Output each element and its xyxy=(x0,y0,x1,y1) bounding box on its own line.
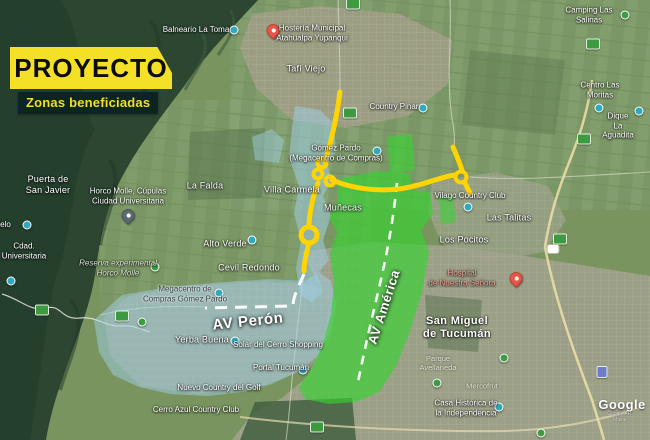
route-shield-icon xyxy=(35,305,49,316)
map-label-mercofrut[interactable]: Mercofrut xyxy=(466,382,498,391)
map-label-alto-verde[interactable]: Alto Verde xyxy=(203,239,247,250)
map-label-cdad-univ[interactable]: Cdad. Universitaria xyxy=(2,241,46,260)
map-label-avellaneda[interactable]: Parque Avellaneda xyxy=(420,354,457,372)
project-subtitle: Zonas beneficiadas xyxy=(18,92,158,114)
tree-poi-icon[interactable] xyxy=(621,11,630,20)
poi-dot-icon[interactable] xyxy=(248,236,257,245)
map-label-puerta[interactable]: Puerta de San Javier xyxy=(26,174,71,196)
tree-poi-icon[interactable] xyxy=(433,379,442,388)
route-shield-icon xyxy=(586,39,600,50)
map-label-aguadita[interactable]: Dique La Aguadita xyxy=(602,112,634,141)
map-label-hosteria[interactable]: Hostería Municipal Atahualpa Yupanqui xyxy=(276,23,347,42)
map-canvas[interactable]: Balneario La Toma Hostería Municipal Ata… xyxy=(0,0,650,440)
pin-center-dot xyxy=(125,213,131,219)
map-label-reserva[interactable]: Reserva experimental Horco Molle xyxy=(79,258,157,277)
map-label-cupulas[interactable]: Horco Molle, Cúpulas Ciudad Universitari… xyxy=(90,186,166,205)
tree-poi-icon[interactable] xyxy=(537,429,546,438)
poi-dot-icon[interactable] xyxy=(7,277,16,286)
map-label-megacentro[interactable]: Megacentro de Compras Gómez Pardo xyxy=(143,284,227,303)
map-label-talitas[interactable]: Las Talitas xyxy=(487,213,532,224)
map-label-carmela[interactable]: Villa Carmela xyxy=(264,185,320,196)
map-label-casa-historica[interactable]: Casa Histórica de la Independencia xyxy=(434,398,497,417)
tree-poi-icon[interactable] xyxy=(500,354,509,363)
project-title: PROYECTO xyxy=(14,53,167,84)
map-label-el-cielo[interactable]: El Cielo xyxy=(0,220,11,230)
poi-dot-icon[interactable] xyxy=(230,26,239,35)
map-label-pinar[interactable]: Country Pinar xyxy=(370,102,419,112)
route-shield-icon xyxy=(553,234,567,245)
map-label-nuevo-country[interactable]: Nuevo Country del Golf xyxy=(177,383,260,393)
map-label-cerro-azul[interactable]: Cerro Azul Country Club xyxy=(153,405,239,415)
map-label-munecas[interactable]: Muñecas xyxy=(324,203,362,214)
project-title-banner: PROYECTO xyxy=(10,47,172,89)
route-shield-icon xyxy=(346,0,360,10)
route-shield-icon xyxy=(115,311,129,322)
route-shield-icon xyxy=(343,108,357,119)
poi-dot-icon[interactable] xyxy=(464,203,473,212)
map-label-portal[interactable]: Portal Tucumán xyxy=(253,363,309,373)
pin-center-dot xyxy=(513,276,519,282)
mall-shield-icon[interactable] xyxy=(597,366,608,378)
map-label-pocitos[interactable]: Los Pocitos xyxy=(440,235,489,246)
map-label-hospital[interactable]: Hospital de Nuestra Señora xyxy=(428,268,495,287)
map-label-tafi-viejo[interactable]: Tafí Viejo xyxy=(287,64,326,75)
tree-poi-icon[interactable] xyxy=(138,318,147,327)
map-label-solar[interactable]: Solar del Cerro Shopping xyxy=(233,340,323,350)
map-label-gomez-pardo[interactable]: Gómez Pardo (Megacentro de Compras) xyxy=(289,143,382,162)
poi-dot-icon[interactable] xyxy=(635,107,644,116)
pin-center-dot xyxy=(270,28,276,34)
route-shield-icon xyxy=(310,422,324,433)
poi-dot-icon[interactable] xyxy=(419,104,428,113)
map-label-camping[interactable]: Camping Las Salinas xyxy=(559,5,620,24)
route-shield-icon xyxy=(577,134,591,145)
map-label-cevil[interactable]: Cevil Redondo xyxy=(218,263,280,274)
map-attribution: Google AR, Maxar xyxy=(605,411,635,423)
map-label-balneario[interactable]: Balneario La Toma xyxy=(163,25,230,35)
route-badge-icon xyxy=(547,244,560,254)
map-label-vilago[interactable]: Vilago Country Club xyxy=(434,191,505,201)
map-label-moritas[interactable]: Centro Las Moritas xyxy=(575,80,625,99)
poi-dot-icon[interactable] xyxy=(23,221,32,230)
map-label-la-falda[interactable]: La Falda xyxy=(187,181,224,192)
map-label-san-miguel[interactable]: San Miguel de Tucumán xyxy=(423,315,491,341)
map-label-yerba-buena[interactable]: Yerba Buena xyxy=(175,335,229,346)
